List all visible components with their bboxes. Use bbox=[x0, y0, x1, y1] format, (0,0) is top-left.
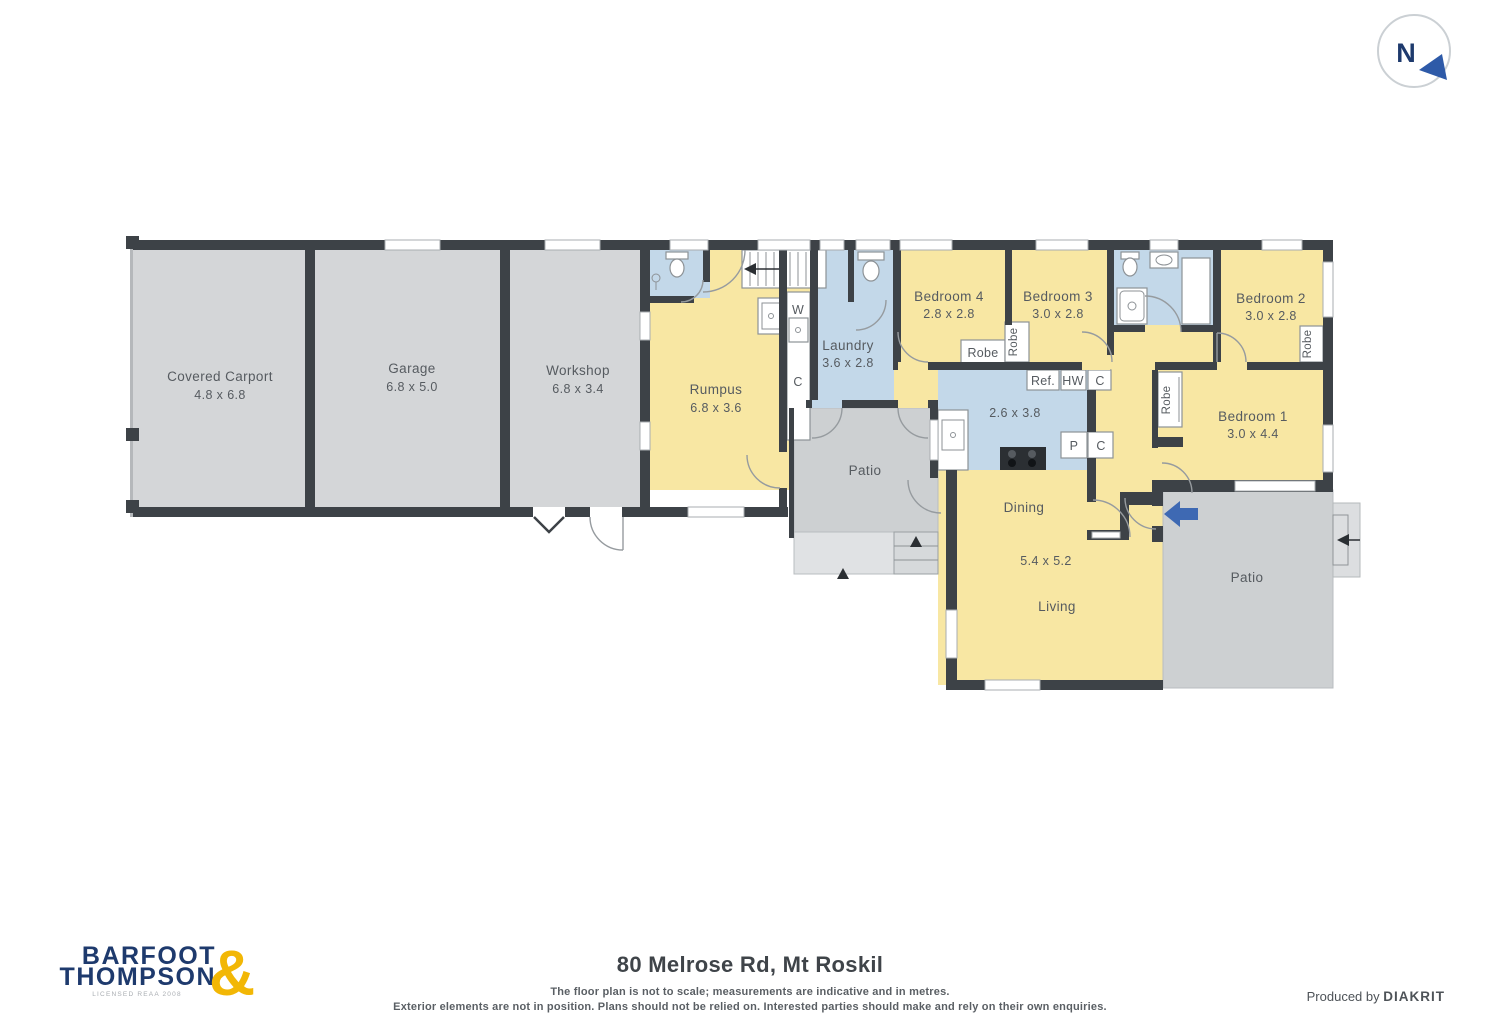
label-cupboard-top: C bbox=[1095, 374, 1104, 388]
floor-plan: Covered Carport 4.8 x 6.8 Garage 6.8 x 5… bbox=[0, 0, 1500, 760]
label-bedroom3: Bedroom 3 bbox=[1023, 289, 1093, 304]
dims-laundry: 3.6 x 2.8 bbox=[822, 356, 874, 370]
dims-carport: 4.8 x 6.8 bbox=[194, 388, 246, 402]
compass: N bbox=[1378, 15, 1450, 87]
bathroom-vanity-icon bbox=[1150, 252, 1178, 268]
label-robe-bed1: Robe bbox=[1161, 386, 1173, 415]
label-hot-water: HW bbox=[1062, 374, 1083, 388]
patio-steps bbox=[794, 532, 894, 574]
dims-living: 5.4 x 5.2 bbox=[1020, 554, 1072, 568]
label-fridge: Ref. bbox=[1031, 374, 1055, 388]
bathroom-shower-icon bbox=[1117, 288, 1147, 324]
bathroom-cabinet bbox=[1182, 258, 1210, 324]
kitchen-stove-icon bbox=[1000, 447, 1046, 470]
label-rumpus: Rumpus bbox=[690, 382, 743, 397]
dims-workshop: 6.8 x 3.4 bbox=[552, 382, 604, 396]
label-patio-middle: Patio bbox=[849, 463, 882, 478]
label-patio-right: Patio bbox=[1231, 570, 1264, 585]
label-bedroom4: Bedroom 4 bbox=[914, 289, 984, 304]
dims-bedroom2: 3.0 x 2.8 bbox=[1245, 309, 1297, 323]
dims-bedroom4: 2.8 x 2.8 bbox=[923, 307, 975, 321]
producer-name: DIAKRIT bbox=[1383, 989, 1445, 1004]
produced-by: Produced by DIAKRIT bbox=[1307, 989, 1445, 1004]
bifold-door-icon bbox=[534, 517, 564, 532]
label-laundry: Laundry bbox=[822, 338, 874, 353]
label-cupboard-mid: C bbox=[1096, 439, 1105, 453]
room-laundry bbox=[818, 250, 894, 402]
label-dining: Dining bbox=[1004, 500, 1045, 515]
label-carport: Covered Carport bbox=[167, 369, 273, 384]
dims-bedroom3: 3.0 x 2.8 bbox=[1032, 307, 1084, 321]
label-workshop: Workshop bbox=[546, 363, 610, 378]
dims-garage: 6.8 x 5.0 bbox=[386, 380, 438, 394]
disclaimer-line1: The floor plan is not to scale; measurem… bbox=[0, 986, 1500, 998]
room-workshop bbox=[510, 250, 640, 507]
floor-plan-page: Covered Carport 4.8 x 6.8 Garage 6.8 x 5… bbox=[0, 0, 1500, 1028]
room-fills bbox=[133, 250, 1360, 688]
laundry-tub-icon bbox=[789, 318, 808, 342]
disclaimer-line2: Exterior elements are not in position. P… bbox=[0, 1001, 1500, 1013]
label-cupboard-laundry: C bbox=[793, 375, 802, 389]
label-living: Living bbox=[1038, 599, 1076, 614]
label-garage: Garage bbox=[388, 361, 435, 376]
carport-post bbox=[126, 428, 139, 441]
bathroom-toilet-icon bbox=[1121, 252, 1139, 276]
label-robe-bed3: Robe bbox=[1008, 328, 1020, 357]
room-garage bbox=[315, 250, 500, 507]
label-bedroom2: Bedroom 2 bbox=[1236, 291, 1306, 306]
label-robe-bed4: Robe bbox=[967, 346, 998, 360]
label-washer: W bbox=[792, 303, 804, 317]
produced-by-label: Produced by bbox=[1307, 989, 1380, 1004]
dims-rumpus: 6.8 x 3.6 bbox=[690, 401, 742, 415]
dims-bedroom1: 3.0 x 4.4 bbox=[1227, 427, 1279, 441]
compass-north-label: N bbox=[1396, 38, 1416, 68]
label-robe-bed2: Robe bbox=[1302, 330, 1314, 359]
carport-post bbox=[126, 500, 139, 513]
property-address: 80 Melrose Rd, Mt Roskil bbox=[0, 952, 1500, 978]
carport-post bbox=[126, 236, 139, 249]
label-bedroom1: Bedroom 1 bbox=[1218, 409, 1288, 424]
kitchen-counter-sink-icon bbox=[938, 410, 968, 470]
dims-kitchen: 2.6 x 3.8 bbox=[989, 406, 1041, 420]
label-pantry: P bbox=[1070, 439, 1079, 453]
